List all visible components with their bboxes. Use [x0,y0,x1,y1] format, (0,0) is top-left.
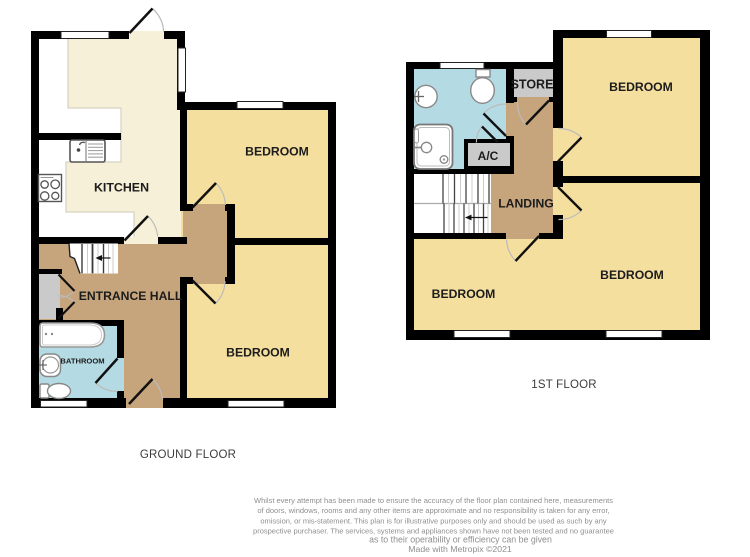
svg-text:STORE: STORE [511,78,554,92]
svg-text:ENTRANCE HALL: ENTRANCE HALL [79,289,183,303]
svg-text:omission, or mis-statement. Th: omission, or mis-statement. This plan is… [260,516,607,525]
svg-text:LANDING: LANDING [498,196,554,210]
svg-text:BEDROOM: BEDROOM [245,145,309,159]
svg-text:BEDROOM: BEDROOM [432,287,496,301]
svg-text:GROUND FLOOR: GROUND FLOOR [140,449,236,461]
svg-text:Whilst every attempt has been: Whilst every attempt has been made to en… [254,496,613,505]
svg-text:A/C: A/C [478,149,499,163]
svg-text:BEDROOM: BEDROOM [226,346,290,360]
svg-text:BATHROOM: BATHROOM [60,356,104,365]
svg-text:KITCHEN: KITCHEN [94,181,149,195]
svg-text:1ST FLOOR: 1ST FLOOR [531,379,597,391]
svg-text:as to their operability or eff: as to their operability or efficiency ca… [369,534,552,544]
svg-text:BEDROOM: BEDROOM [600,268,664,282]
svg-text:Made with Metropix ©2021: Made with Metropix ©2021 [408,544,512,554]
svg-text:BEDROOM: BEDROOM [609,80,673,94]
svg-text:of doors, windows, rooms and a: of doors, windows, rooms and any other i… [257,506,609,515]
